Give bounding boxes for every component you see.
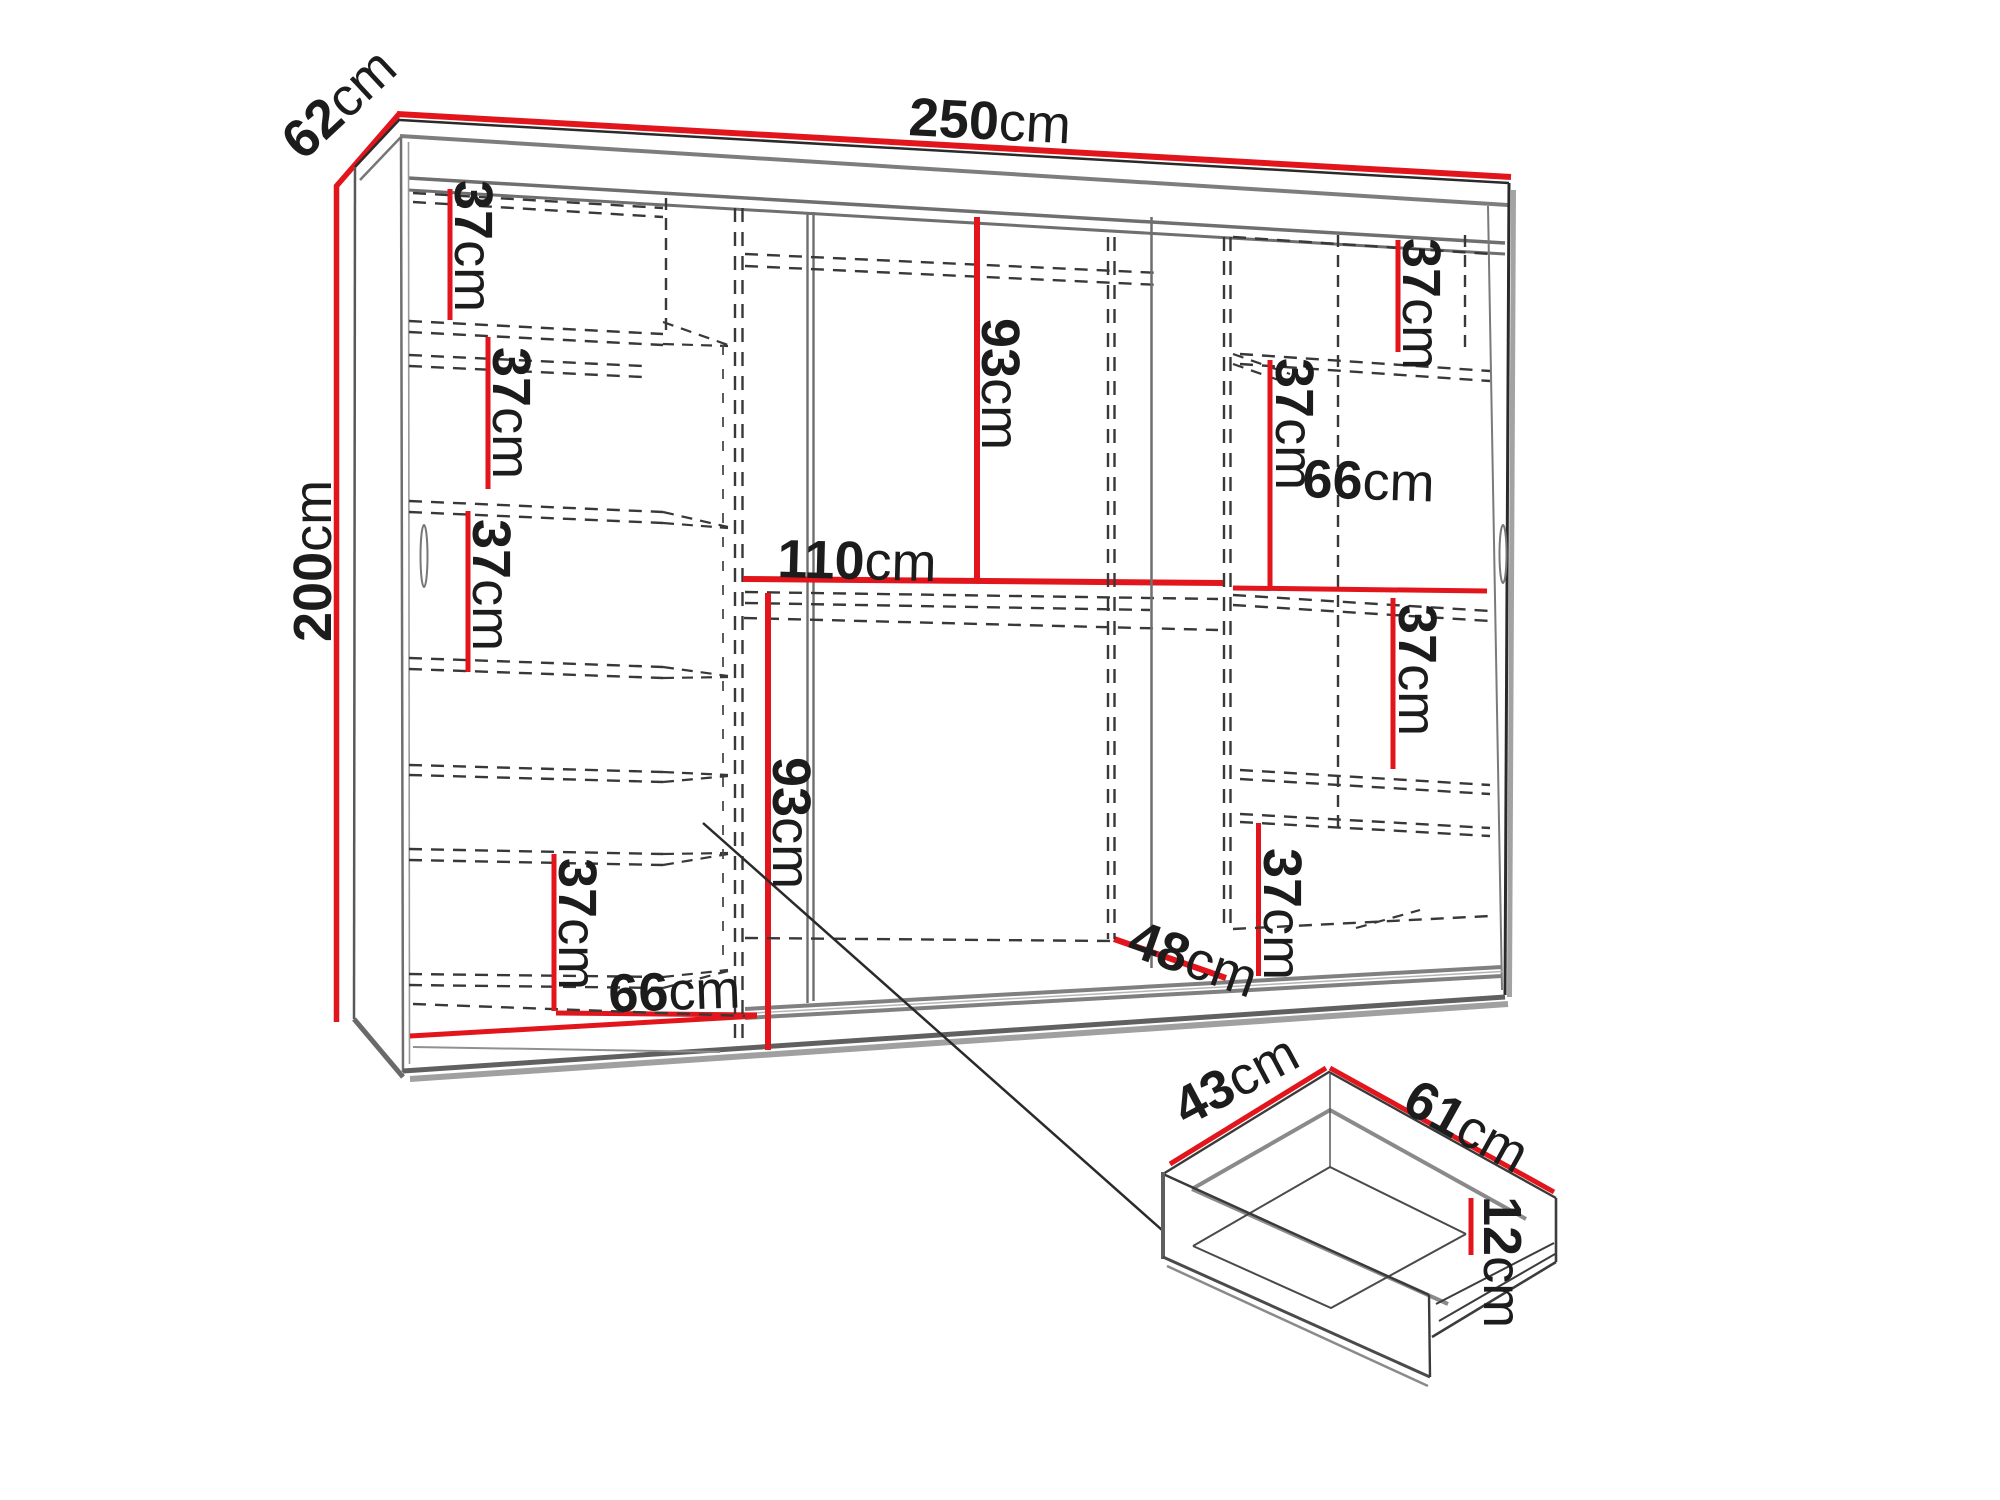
svg-text:37cm: 37cm [1387, 604, 1447, 736]
svg-text:12cm: 12cm [1472, 1196, 1532, 1328]
svg-text:37cm: 37cm [1252, 848, 1312, 980]
svg-text:37cm: 37cm [443, 180, 503, 312]
svg-text:37cm: 37cm [481, 347, 541, 479]
svg-text:93cm: 93cm [970, 318, 1030, 450]
svg-text:66cm: 66cm [1302, 449, 1436, 514]
svg-text:250cm: 250cm [907, 87, 1072, 155]
svg-text:93cm: 93cm [761, 757, 821, 889]
svg-text:37cm: 37cm [547, 858, 607, 990]
svg-text:200cm: 200cm [283, 480, 343, 642]
svg-text:37cm: 37cm [461, 519, 521, 651]
svg-text:66cm: 66cm [607, 959, 741, 1024]
svg-text:37cm: 37cm [1391, 238, 1451, 370]
svg-text:110cm: 110cm [777, 529, 938, 593]
